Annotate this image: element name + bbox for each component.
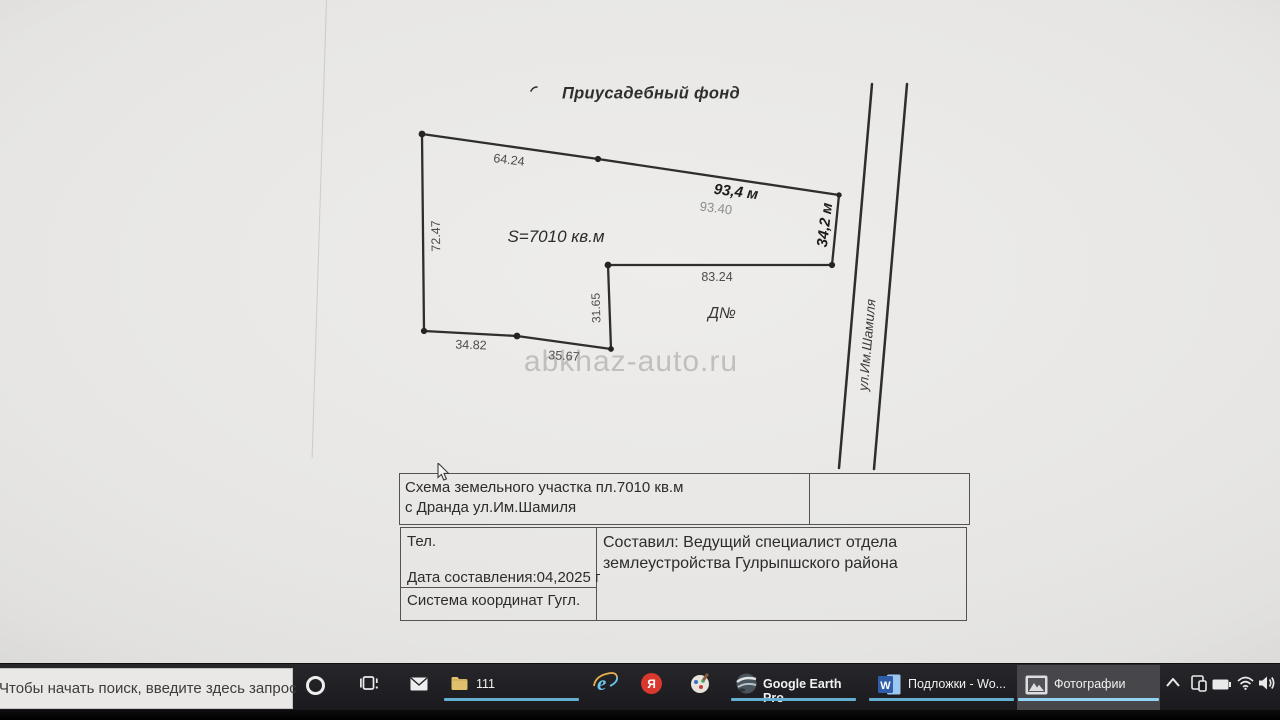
screen-bottom-bezel: [0, 710, 1280, 720]
area-label: S=7010 кв.м: [507, 227, 604, 247]
date-label: Дата составления:04,2025 г: [407, 568, 600, 588]
photos-icon: [1025, 675, 1048, 695]
ie-button[interactable]: e: [592, 665, 620, 710]
drawing-title: Приусадебный фонд: [562, 85, 740, 104]
google-earth-button[interactable]: Google Earth Pro: [730, 665, 857, 710]
active-indicator: [444, 698, 579, 701]
folder-icon: [451, 676, 468, 690]
tray-device-button[interactable]: [1191, 665, 1209, 710]
yandex-icon: Я: [641, 673, 662, 694]
active-indicator: [731, 698, 856, 701]
plot-edge-bottom-left: [424, 331, 517, 336]
info-table-bottom: Тел. Дата составления:04,2025 г Система …: [400, 527, 967, 621]
dim-83-24: 83.24: [701, 270, 732, 284]
cortana-button[interactable]: [306, 665, 328, 710]
info-table-top: Схема земельного участка пл.7010 кв.м с …: [399, 473, 970, 525]
plot-number-label: Д№: [708, 305, 736, 323]
mail-button[interactable]: [410, 665, 430, 710]
taskbar: 111 e Я: [0, 663, 1280, 711]
dim-72-47: 72.47: [429, 220, 444, 252]
google-earth-icon: [736, 673, 757, 694]
photos-app-image-area: Приусадебный фонд 64.24 93,4 м 93.40 34,…: [0, 0, 1280, 710]
cortana-icon: [306, 676, 325, 695]
mouse-cursor: [437, 463, 451, 482]
active-indicator: [869, 698, 1014, 701]
task-view-icon: [360, 675, 378, 692]
photographed-laptop-screen: Приусадебный фонд 64.24 93,4 м 93.40 34,…: [0, 0, 1280, 720]
google-earth-label: Google Earth Pro: [763, 677, 857, 705]
coords-label: Система координат Гугл.: [407, 591, 580, 611]
author-line1: Составил: Ведущий специалист отдела: [603, 532, 898, 553]
tel-label: Тел.: [407, 532, 436, 552]
land-survey-document: Приусадебный фонд 64.24 93,4 м 93.40 34,…: [0, 0, 1280, 710]
taskbar-search[interactable]: [0, 668, 293, 709]
active-indicator-active: [1018, 698, 1159, 701]
search-input[interactable]: [0, 669, 298, 708]
dim-31-65: 31.65: [588, 293, 603, 324]
folder-label: 111: [476, 677, 495, 691]
tray-battery-icon: [1212, 679, 1231, 690]
tray-chevron-icon: [1166, 678, 1180, 687]
tray-device-icon: [1191, 675, 1207, 692]
author-cell: Составил: Ведущий специалист отдела земл…: [603, 532, 898, 574]
word-button[interactable]: W Подложки - Wo...: [868, 665, 1015, 710]
plot-edge-inner-vertical: [608, 265, 611, 349]
svg-text:W: W: [880, 680, 891, 692]
author-line2: землеустройства Гулрыпшского района: [603, 553, 898, 574]
road-line-left: [839, 84, 872, 468]
paint3d-button[interactable]: [689, 665, 713, 710]
tray-volume-button[interactable]: [1258, 665, 1278, 710]
folder-111-button[interactable]: 111: [443, 665, 580, 710]
tray-wifi-button[interactable]: [1237, 665, 1256, 710]
tray-expand-button[interactable]: [1166, 665, 1183, 710]
word-label: Подложки - Wo...: [908, 677, 1006, 691]
road-line-right: [874, 84, 907, 469]
photos-label: Фотографии: [1054, 677, 1125, 691]
scheme-title-cell: Схема земельного участка пл.7010 кв.м с …: [405, 478, 683, 517]
scheme-line2: с Дранда ул.Им.Шамиля: [405, 498, 683, 518]
table-divider: [809, 474, 810, 524]
ie-icon: e: [592, 670, 619, 696]
photo-speck: [531, 87, 537, 91]
tray-battery-button[interactable]: [1212, 665, 1233, 710]
photos-button[interactable]: Фотографии: [1017, 665, 1160, 710]
tray-wifi-icon: [1237, 676, 1254, 690]
plot-edge-left: [422, 134, 424, 331]
word-icon: W: [878, 674, 901, 695]
mail-icon: [410, 677, 428, 691]
paint3d-icon: [689, 672, 712, 695]
task-view-button[interactable]: [360, 665, 380, 710]
dim-34-82: 34.82: [455, 337, 487, 352]
watermark: abkhaz-auto.ru: [524, 345, 738, 379]
yandex-browser-button[interactable]: Я: [641, 665, 665, 710]
tray-volume-icon: [1258, 675, 1276, 691]
